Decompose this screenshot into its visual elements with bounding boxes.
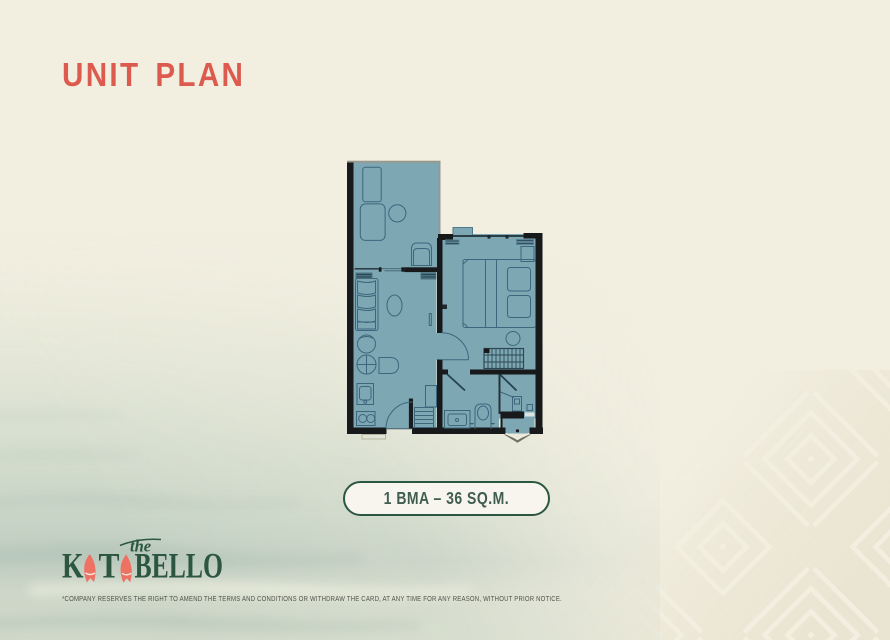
svg-text:T: T bbox=[99, 546, 120, 586]
svg-text:BELLO: BELLO bbox=[135, 546, 224, 586]
svg-text:K: K bbox=[62, 546, 84, 586]
